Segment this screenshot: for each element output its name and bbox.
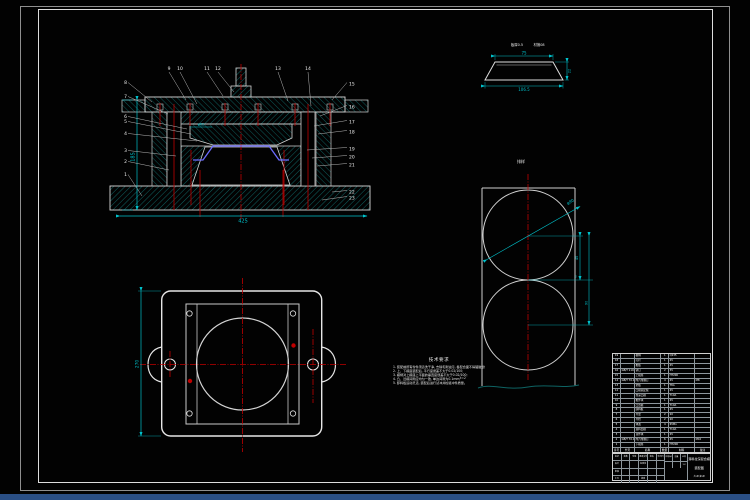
tb-cell (647, 476, 656, 482)
part-profile-view: 75 106.5 22 板厚0.5 材攁08 (485, 42, 572, 92)
callout: 11 (204, 66, 210, 72)
bom-table: 19 模柄 1 Q235 18 打杆 1 45 17 推板 1 45 (612, 353, 711, 453)
section-view: 185 425 φ62 8 7 6 (110, 64, 370, 225)
callout: 22 (349, 190, 355, 196)
strip-dim-pitch: 45 (575, 256, 579, 260)
dowel-hole-left (188, 379, 192, 383)
strip-dimensions (487, 207, 593, 326)
part-label-thickness: 板厚0.5 (511, 42, 523, 47)
drawing-sheet-count: 共1张 第1张 (688, 475, 710, 478)
upper-shoe-ear-left (122, 100, 145, 112)
strip-dim-span: 90 (585, 301, 589, 305)
bom-header: 代号 (620, 448, 634, 452)
part-label-material: 材攁08 (533, 42, 544, 47)
drawing-title-line1: 落料拉深复合模 (688, 456, 710, 461)
callout: 8 (124, 80, 127, 86)
callout: 15 (349, 82, 355, 88)
callout: 5 (124, 119, 127, 125)
title-block-name: 落料拉深复合模 装配图 共1张 第1张 (688, 454, 710, 480)
notes-line: 5. 卸料板运动灵活, 装配后进行试冲并检验冲件质量。 (393, 381, 485, 385)
callout: 19 (349, 147, 355, 153)
tb-approve-label: 批准 (638, 476, 647, 482)
callout: 23 (349, 196, 355, 202)
tb-cell (621, 476, 630, 482)
notes-line: 1. 装配前所有零件须清洗干净, 去除毛刺油污, 各配合面不得磕碰划伤; (393, 365, 485, 369)
title-block-revision-grid: 标记 处数 分区 更改文件号 签名 年月日 设计 标准化 审核 (613, 454, 665, 480)
dowel-hole-right (291, 343, 295, 347)
callout: 12 (215, 66, 221, 72)
bom-header: 序号 (613, 448, 620, 452)
callout: 21 (349, 163, 355, 169)
dim-overall-height: 185 (131, 152, 137, 162)
part-dimensions (485, 54, 569, 89)
cad-drawing-canvas: 185 425 φ62 8 7 6 (0, 0, 750, 500)
strip-dim-diameter: φ90 (566, 197, 576, 205)
callout: 14 (305, 66, 311, 72)
bom-header: 备注 (694, 448, 710, 452)
bom-header: 材料 (668, 448, 694, 452)
part-dim-top: 75 (521, 51, 527, 56)
tb-drawing-number-cell (665, 468, 687, 480)
upper-die-shoe (145, 97, 345, 112)
bom-header-row: 序号 代号 名称 数量 材料 备注 (613, 447, 710, 452)
callout: 9 (168, 66, 171, 72)
technical-notes: 技术要求 1. 装配前所有零件须清洗干净, 去除毛刺油污, 各配合面不得磕碰划伤… (393, 357, 485, 385)
callout: 3 (124, 148, 127, 154)
callout: 1 (124, 172, 127, 178)
bom-header: 名称 (634, 448, 660, 452)
dim-cavity-dia: φ62 (198, 123, 205, 127)
plate-plan-view: 270 (135, 278, 347, 452)
tb-cell (656, 476, 665, 482)
notes-heading: 技术要求 (393, 357, 485, 363)
tb-cell (629, 476, 638, 482)
tb-craft-label: 工艺 (613, 476, 621, 482)
callout: 2 (124, 159, 127, 165)
callout: 4 (124, 131, 127, 137)
part-dim-bottom: 106.5 (518, 87, 530, 92)
drawing-title-line2: 装配图 (688, 465, 710, 470)
callout: 13 (275, 66, 281, 72)
callout: 10 (177, 66, 183, 72)
plate-dim-height: 270 (135, 360, 141, 369)
callout: 17 (349, 120, 355, 126)
screw-holes (187, 311, 296, 416)
plate-dimension (138, 291, 161, 436)
lower-die-shoe (110, 186, 370, 210)
tb-stage-label: 阶段标记 (665, 454, 672, 461)
strip-break-line (478, 385, 579, 388)
dim-overall-width: 425 (238, 219, 248, 225)
part-dim-height: 22 (568, 69, 572, 73)
callout: 16 (349, 105, 355, 111)
strip-dim-bridge: 2 (575, 275, 577, 279)
callout: 20 (349, 155, 355, 161)
strip-layout-view: 排样 φ90 45 90 2 t=2 (460, 158, 593, 388)
title-block-stage-grid: 阶段标记 重量 比例 1:2 (665, 454, 688, 480)
callout: 7 (124, 94, 127, 100)
tb-scale-label: 比例 (680, 454, 688, 461)
tb-weight-label: 重量 (672, 454, 680, 461)
title-block: 标记 处数 分区 更改文件号 签名 年月日 设计 标准化 审核 (612, 453, 711, 481)
strip-title: 排样 (517, 158, 525, 164)
callout: 18 (349, 130, 355, 136)
bom-header: 数量 (660, 448, 668, 452)
